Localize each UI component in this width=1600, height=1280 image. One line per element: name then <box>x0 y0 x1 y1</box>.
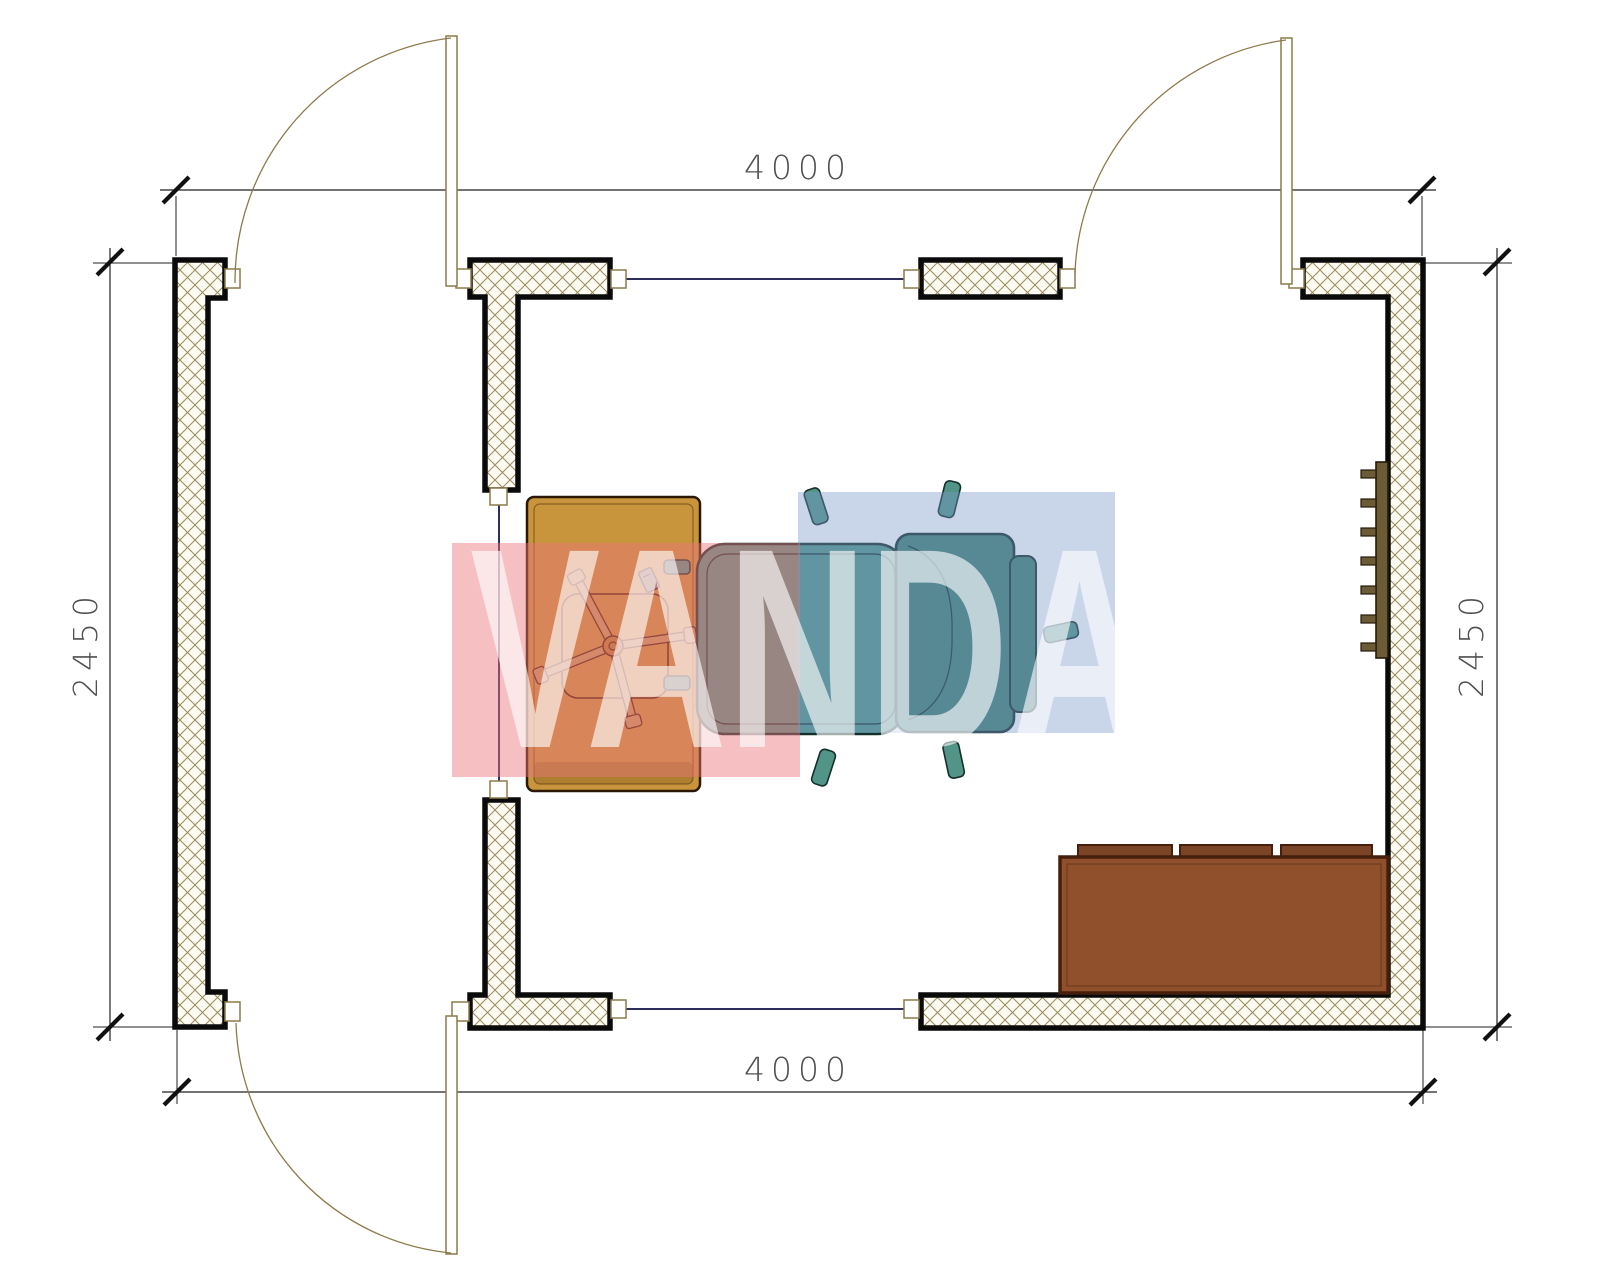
sofa <box>1060 845 1388 993</box>
door-jamb <box>1060 269 1075 288</box>
sofa-body <box>1060 857 1388 993</box>
window-jamb <box>904 270 919 288</box>
left-wall <box>175 260 225 1027</box>
door-jamb <box>456 269 471 288</box>
top-right-door-swing-arc <box>1075 40 1286 273</box>
floor-plan-canvas: 4000 4000 2450 2450 <box>0 0 1600 1280</box>
top-left-door-leaf <box>446 36 457 286</box>
top-left-partition-wall <box>470 260 610 490</box>
bottom-left-door-swing-arc <box>236 1023 451 1253</box>
window-jamb <box>611 1000 626 1018</box>
window-jamb <box>904 1000 919 1018</box>
door-jamb <box>225 269 240 288</box>
top-left-door-swing-arc <box>235 38 451 283</box>
bottom-left-partition-wall <box>470 800 610 1028</box>
door-jamb <box>225 1002 240 1021</box>
top-middle-wall <box>921 260 1060 297</box>
dimension-label-left: 2450 <box>66 590 105 698</box>
watermark: VANDA <box>452 490 1150 808</box>
radiator <box>1361 462 1388 658</box>
floor-plan-drawing: 4000 4000 2450 2450 <box>0 0 1600 1280</box>
dimension-label-bottom: 4000 <box>744 1050 852 1089</box>
window-jamb <box>611 270 626 288</box>
dimension-label-right: 2450 <box>1452 590 1491 698</box>
dimension-label-top: 4000 <box>744 148 852 187</box>
watermark-text: VANDA <box>470 490 1150 808</box>
bottom-left-door-leaf <box>446 1016 457 1254</box>
top-right-door-leaf <box>1281 38 1292 284</box>
